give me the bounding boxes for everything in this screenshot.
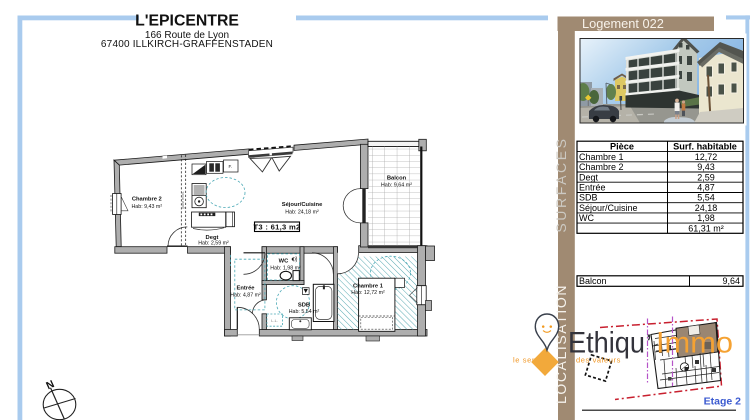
svg-text:Chambre 2: Chambre 2 — [579, 162, 624, 172]
svg-text:WC: WC — [579, 213, 594, 223]
svg-text:Chambre 1: Chambre 1 — [579, 152, 624, 162]
svg-text:5,54: 5,54 — [697, 193, 715, 203]
svg-text:Pièce: Pièce — [610, 142, 634, 152]
svg-text:24,18: 24,18 — [695, 203, 718, 213]
svg-text:9,43: 9,43 — [697, 162, 715, 172]
svg-text:Hab: 5,54 m²: Hab: 5,54 m² — [289, 309, 320, 315]
svg-text:1,98: 1,98 — [697, 213, 715, 223]
svg-text:Balcon: Balcon — [387, 176, 407, 182]
svg-text:Entrée: Entrée — [236, 286, 255, 292]
svg-text:Hab: 2,59 m²: Hab: 2,59 m² — [198, 240, 229, 246]
svg-text:L.L.: L.L. — [271, 318, 278, 323]
svg-text:SURFACES: SURFACES — [553, 136, 569, 232]
svg-text:L'EPICENTRE: L'EPICENTRE — [135, 12, 239, 29]
svg-text:Chambre 2: Chambre 2 — [132, 197, 162, 203]
svg-text:12,72: 12,72 — [695, 152, 718, 162]
svg-text:4,87: 4,87 — [697, 183, 715, 193]
svg-text:61,31 m²: 61,31 m² — [688, 223, 724, 233]
svg-text:2,59: 2,59 — [697, 172, 715, 182]
svg-text:T3 : 61,3 m2: T3 : 61,3 m2 — [253, 223, 300, 232]
svg-text:Séjour/Cuisine: Séjour/Cuisine — [579, 203, 638, 213]
svg-text:F.: F. — [229, 164, 233, 169]
svg-text:Balcon: Balcon — [579, 276, 607, 286]
svg-text:Chambre 1: Chambre 1 — [353, 283, 384, 289]
svg-text:WC: WC — [279, 259, 289, 265]
svg-text:67400 ILLKIRCH-GRAFFENSTADEN: 67400 ILLKIRCH-GRAFFENSTADEN — [101, 39, 273, 50]
svg-text:LOCALISATION: LOCALISATION — [553, 284, 569, 404]
svg-text:gaine techn.: gaine techn. — [181, 191, 185, 208]
svg-text:Logement 022: Logement 022 — [582, 16, 664, 31]
svg-text:Hab: 24,18 m²: Hab: 24,18 m² — [285, 210, 319, 216]
svg-text:Etage 2: Etage 2 — [704, 396, 742, 408]
svg-text:Hab: 12,72 m²: Hab: 12,72 m² — [351, 290, 385, 296]
svg-text:Ethiqu’Immo: Ethiqu’Immo — [568, 327, 733, 360]
svg-text:Hab: 4,87 m²: Hab: 4,87 m² — [230, 292, 261, 298]
svg-text:Hab: 9,64 m²: Hab: 9,64 m² — [381, 183, 412, 189]
svg-text:Hab: 1,98 m²: Hab: 1,98 m² — [270, 266, 301, 272]
svg-text:9,64: 9,64 — [722, 276, 740, 286]
svg-text:SDB: SDB — [298, 303, 310, 309]
svg-text:SDB: SDB — [579, 193, 598, 203]
svg-text:Entrée: Entrée — [579, 183, 606, 193]
svg-text:Surf. habitable: Surf. habitable — [673, 142, 737, 152]
svg-text:Séjour/Cuisine: Séjour/Cuisine — [282, 202, 323, 208]
svg-text:Hab: 9,43 m²: Hab: 9,43 m² — [131, 204, 162, 210]
svg-text:Degt: Degt — [579, 172, 599, 182]
